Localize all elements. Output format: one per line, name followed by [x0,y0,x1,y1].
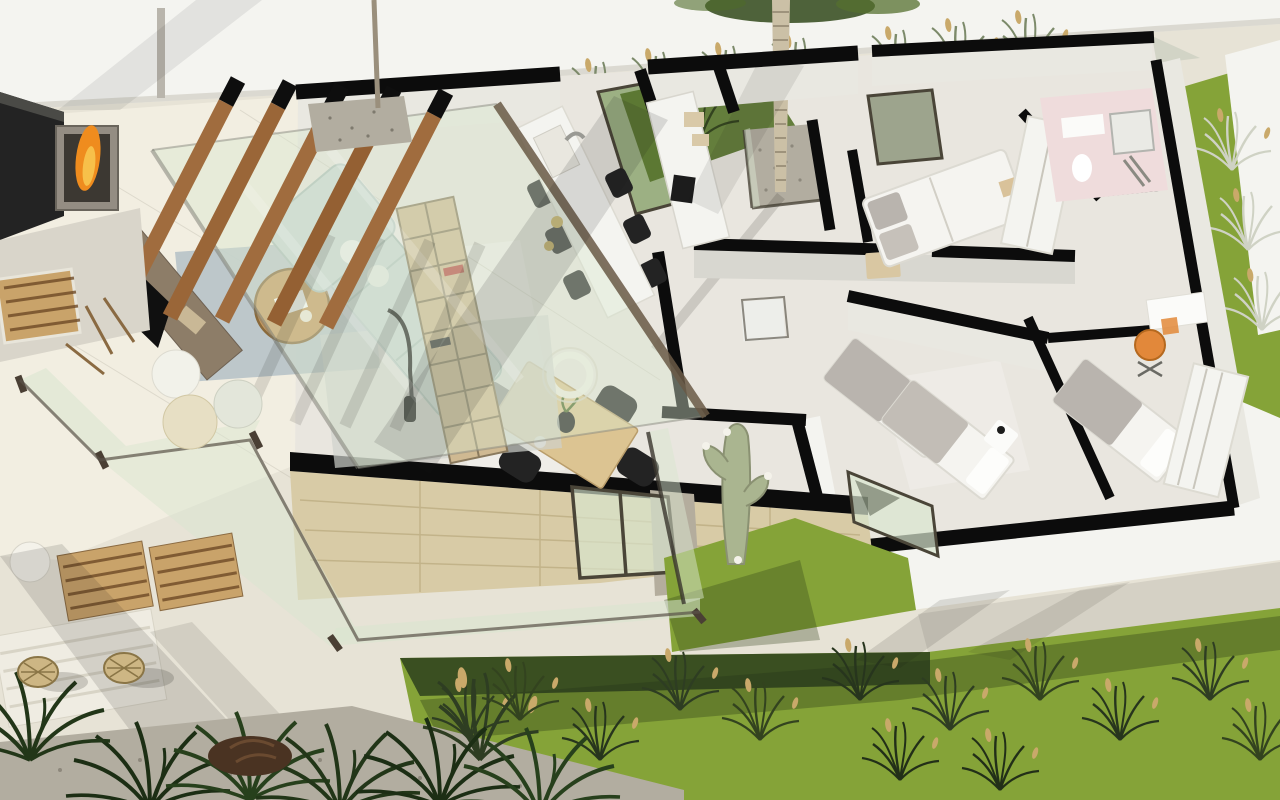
kitchen-shelf-box-2 [692,134,709,146]
gravel-square [308,96,412,152]
pouf-white [152,350,200,398]
wicker-lantern-1 [18,657,58,687]
kitchen-shelf-box [684,112,704,127]
orange-desk-chair[interactable] [1135,330,1165,360]
fire-bowl [56,124,118,210]
wicker-lantern-2 [104,653,144,683]
cactus-bloom-4 [734,556,742,564]
bedroom2-lamp [997,426,1005,434]
utility-shower [741,299,786,342]
pouf-sage [214,380,262,428]
cut-hall-north-b [932,251,1075,256]
cut-hall-north-a [694,244,900,250]
bedroomA-window [868,90,942,164]
pouf-cream [163,395,217,449]
scene-canvas: Photorealistic aerial 3D cutaway render … [0,0,1280,800]
orange-basket [1161,317,1179,335]
bath-toilet [1072,154,1092,182]
bath-shower [1110,110,1154,154]
floorplan-render: Photorealistic aerial 3D cutaway render … [0,0,1280,800]
cactus-bloom [702,442,710,450]
cactus-bloom-2 [764,472,772,480]
cactus-bloom-3 [723,428,731,436]
